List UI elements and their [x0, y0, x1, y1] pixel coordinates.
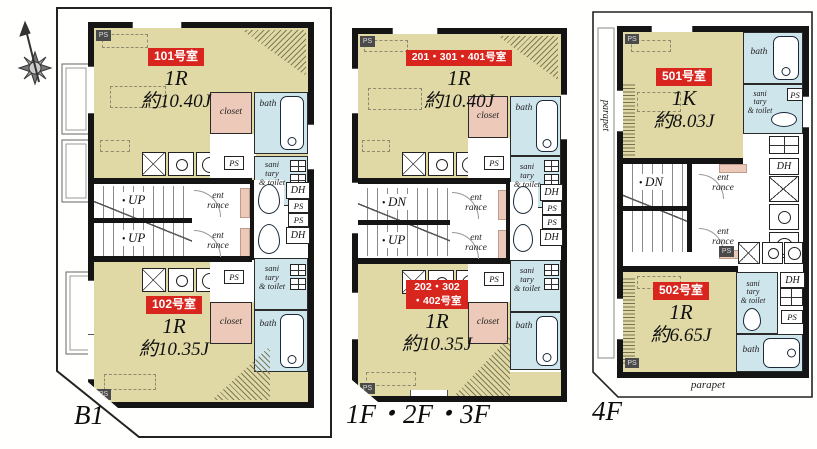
stair-direction-up: UP: [120, 230, 147, 246]
kitchen-sink-icon: [428, 152, 454, 176]
window: [88, 280, 94, 338]
window: [651, 26, 693, 32]
window: [617, 90, 623, 132]
dh-tag: DH: [540, 184, 563, 201]
ps-chip: PS: [625, 34, 639, 44]
unit-501-type: 1K: [672, 88, 697, 109]
window: [617, 298, 623, 340]
washbasin-icon: [290, 278, 306, 290]
building-1f2f3f: PS closet bath sani tary & toilet DN UP …: [352, 28, 567, 402]
floor-label-1f2f3f: 1F・2F・3F: [346, 392, 490, 431]
unit-101-area: 約10.40J: [141, 91, 211, 113]
bath-label: bath: [511, 322, 537, 332]
laundry-icon: [290, 160, 306, 172]
washer-space-icon: [769, 176, 799, 202]
window: [88, 334, 94, 380]
stair-direction-up: UP: [380, 232, 407, 248]
unit-501-caption: 501号室 1K 約8.03J: [631, 68, 737, 132]
window: [803, 96, 809, 128]
dh-tag: DH: [286, 182, 310, 199]
unit-102-caption: 102号室 1R 約10.35J: [112, 296, 236, 360]
unit-502-area: 約6.65J: [651, 325, 712, 347]
room-202-corner: [510, 372, 561, 396]
stair-direction-dn: DN: [380, 194, 408, 210]
bathtub-icon: [536, 100, 558, 152]
entrance-label-102: ent rance: [196, 232, 240, 252]
unit-502-caption: 502号室 1R 約6.65J: [629, 282, 733, 346]
unit-101-caption: 101号室 1R 約10.40J: [114, 48, 238, 112]
toilet-icon: [743, 308, 761, 331]
laundry-icon: [544, 264, 559, 276]
sanitary-label: sani tary & toilet: [254, 160, 290, 187]
parapet-label-left: parapet: [596, 84, 610, 148]
ps-tag: PS: [781, 310, 803, 324]
bathtub-icon: [280, 96, 304, 150]
compass-north-icon: [8, 18, 62, 96]
stove-icon: [784, 242, 803, 264]
ps-tag: PS: [224, 156, 244, 170]
toilet-icon: [258, 184, 280, 214]
ps-tag: PS: [787, 88, 803, 101]
ps-chip: PS: [625, 358, 639, 368]
window: [88, 66, 94, 114]
kitchen-sink-icon: [769, 204, 799, 230]
washer-space-icon: [402, 152, 426, 176]
laundry-icon: [544, 160, 559, 172]
entrance-mat: [240, 188, 250, 218]
entrance-mat: [240, 228, 250, 258]
unit-202-area: 約10.35J: [402, 334, 472, 356]
unit-502-type: 1R: [669, 302, 692, 323]
window: [392, 28, 438, 34]
ps-tag: PS: [484, 156, 504, 170]
unit-501-area: 約8.03J: [654, 111, 715, 133]
sanitary-label: sani tary & toilet: [743, 90, 777, 115]
bath-label: bath: [745, 48, 773, 58]
dh-tag: DH: [286, 227, 310, 244]
sanitary-label: sani tary & toilet: [510, 266, 544, 293]
bathtub-icon: [773, 36, 799, 80]
floor-label-4f: 4F: [592, 396, 622, 427]
washer-space-icon: [142, 152, 166, 176]
ps-tag: PS: [542, 201, 562, 215]
dh-tag: DH: [769, 158, 799, 175]
toilet-icon: [513, 186, 533, 214]
ps-tag: PS: [224, 270, 244, 284]
entrance-label-501: ent rance: [701, 174, 745, 194]
partition-wall: [358, 178, 510, 184]
dh-tag: DH: [540, 229, 563, 246]
toilet-icon: [258, 224, 280, 254]
laundry-icon: [290, 264, 306, 276]
entrance-label-101: ent rance: [196, 192, 240, 212]
window: [352, 182, 358, 234]
stair-divider-wall: [358, 220, 450, 225]
kitchen-sink-icon: [168, 152, 194, 176]
stair-direction-dn: DN: [637, 174, 665, 190]
window: [352, 292, 358, 340]
toilet-icon: [513, 224, 533, 252]
stair-divider-wall: [623, 206, 687, 211]
washer-space-icon: [142, 268, 166, 292]
kitchen-sink-icon: [762, 242, 783, 264]
entrance-label-201: ent rance: [454, 194, 498, 214]
unit-201-caption: 201・301・401号室 1R 約10.40J: [384, 50, 534, 112]
parapet-label-bottom: parapet: [668, 380, 748, 392]
building-4f: bath sani tary & toilet PS DH DN ent ran…: [617, 26, 809, 378]
sanitary-label: sani tary & toilet: [736, 280, 770, 305]
laundry-icon: [769, 136, 799, 154]
kitchen-sink-icon: [168, 268, 194, 292]
ps-chip: PS: [360, 36, 375, 47]
ps-tag: PS: [288, 199, 309, 213]
window: [561, 94, 567, 140]
unit-201-badge: 201・301・401号室: [406, 50, 513, 66]
unit-201-area: 約10.40J: [424, 91, 494, 113]
closet-label: closet: [477, 112, 499, 122]
partition-wall: [687, 164, 692, 252]
window: [352, 68, 358, 114]
unit-101-badge: 101号室: [148, 48, 204, 66]
unit-201-type: 1R: [447, 68, 470, 89]
building-b1: PS closet bath sani tary & toilet UP UP …: [88, 22, 314, 408]
furniture-outline: [100, 140, 130, 152]
bathtub-icon: [763, 338, 800, 368]
dh-tag: DH: [780, 272, 805, 288]
unit-202-type: 1R: [425, 311, 448, 332]
window: [308, 124, 314, 170]
sanitary-label: sani tary & toilet: [510, 162, 544, 189]
bath-label: bath: [738, 346, 764, 356]
bathtub-icon: [536, 316, 558, 366]
unit-102-badge: 102号室: [146, 296, 202, 314]
laundry-icon: [780, 288, 803, 306]
furniture-outline: [362, 140, 390, 152]
unit-502-badge: 502号室: [653, 282, 709, 300]
bath-label: bath: [255, 100, 281, 110]
floor-label-b1: B1: [74, 400, 104, 431]
ps-tag: PS: [288, 213, 309, 227]
stair-direction-up: UP: [120, 192, 147, 208]
entrance-label-202: ent rance: [454, 234, 498, 254]
bathtub-icon: [280, 314, 304, 368]
unit-202-badge: 202・302 ・402号室: [406, 280, 467, 309]
furniture-outline: [104, 374, 156, 390]
ps-tag: PS: [542, 215, 562, 229]
unit-102-area: 約10.35J: [139, 339, 209, 361]
ps-chip: PS: [719, 246, 734, 257]
bath-label: bath: [255, 320, 281, 330]
ps-chip: PS: [96, 30, 111, 41]
entrance-mat: [719, 164, 747, 173]
entrance-label-502: ent rance: [701, 228, 745, 248]
sanitary-label: sani tary & toilet: [254, 264, 290, 291]
unit-101-type: 1R: [164, 68, 187, 89]
unit-102-type: 1R: [162, 316, 185, 337]
floor-plan-sheet: PS closet bath sani tary & toilet UP UP …: [0, 0, 817, 449]
unit-501-badge: 501号室: [656, 68, 712, 86]
stair-divider-wall: [94, 218, 192, 223]
window: [132, 22, 182, 28]
washbasin-icon: [544, 278, 559, 290]
unit-202-caption: 202・302 ・402号室 1R 約10.35J: [372, 280, 502, 356]
